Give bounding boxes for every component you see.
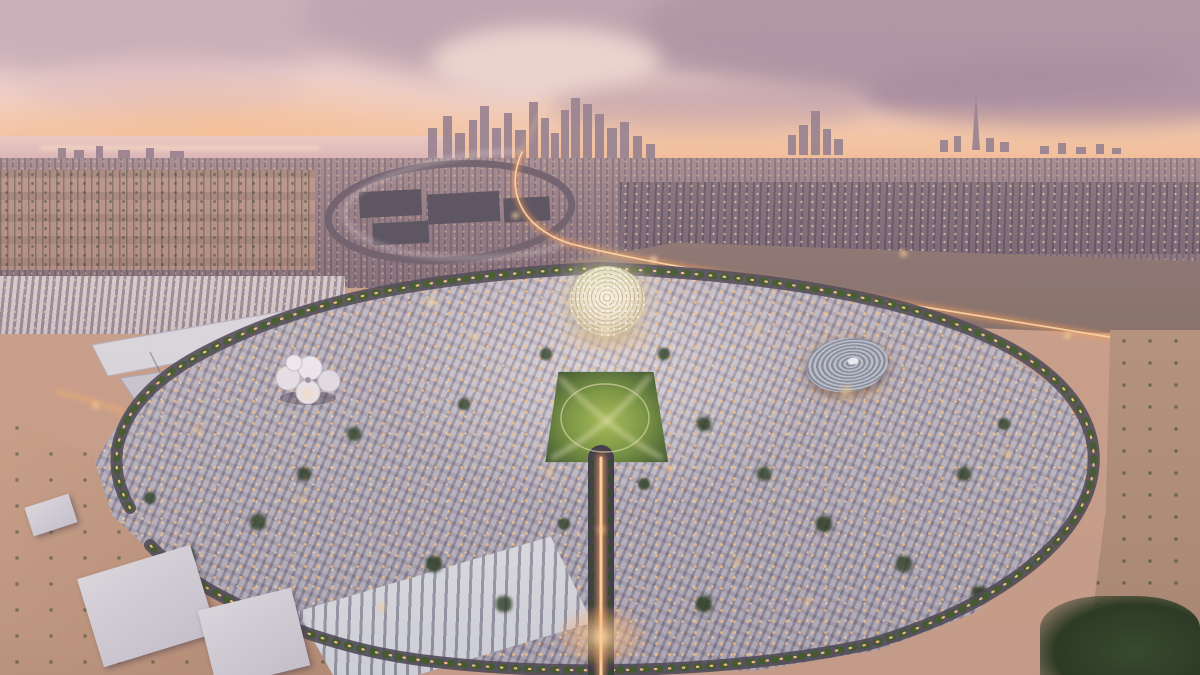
boulevard-intersection-glow [556,606,646,666]
park-path-ring [561,384,649,452]
al-wasl-dome [569,266,645,336]
expo-aerial-rendering [0,0,1200,675]
clover-canopy-pavilion [276,355,340,405]
venue-light-sparkles [0,0,3,3]
palm-grove-corner [1040,596,1200,675]
